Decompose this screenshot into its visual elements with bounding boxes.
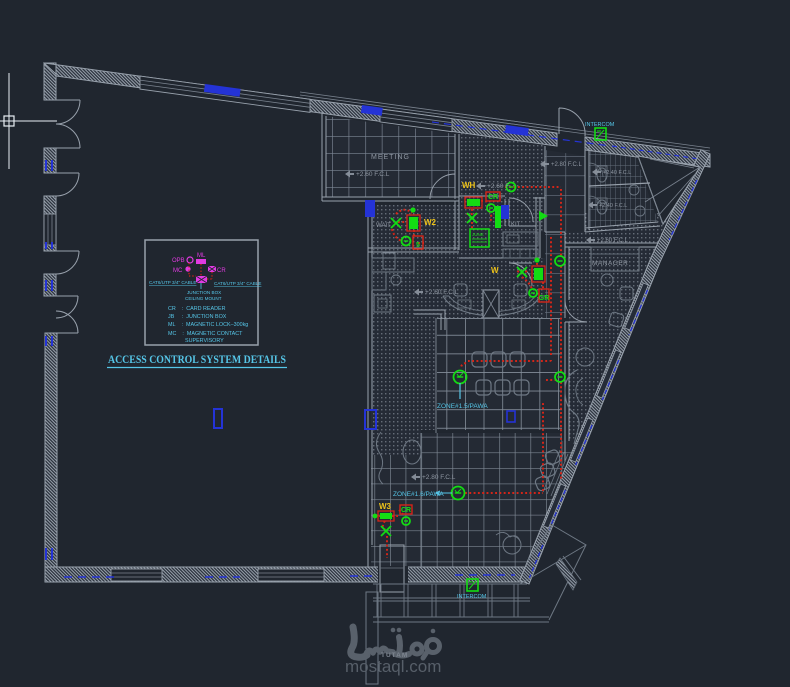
svg-text:CR: CR bbox=[488, 194, 498, 201]
svg-text:JUNCTION BOX: JUNCTION BOX bbox=[187, 290, 221, 295]
svg-text:OPB: OPB bbox=[172, 258, 185, 264]
svg-text:W3: W3 bbox=[379, 502, 392, 511]
svg-text:5: 5 bbox=[416, 242, 420, 249]
svg-text:INTERCOM: INTERCOM bbox=[585, 122, 615, 128]
svg-text:+2.60 F: +2.60 F bbox=[487, 183, 509, 190]
svg-text:+2.60 F.C.L: +2.60 F.C.L bbox=[356, 171, 390, 178]
svg-text:ACCESS CONTROL SYSTEM DETAI: ACCESS CONTROL SYSTEM DETAILS bbox=[108, 352, 286, 366]
svg-text:CR: CR bbox=[217, 268, 226, 274]
svg-text:ML : MAGNETIC LOCK–300kg: ML : MAGNETIC LOCK–300kg bbox=[168, 322, 248, 328]
svg-text:KIT: KIT bbox=[511, 222, 521, 228]
svg-text:+2.60 F.C.L: +2.60 F.C.L bbox=[597, 238, 629, 244]
svg-text:+2.40 F.C.L: +2.40 F.C.L bbox=[599, 203, 627, 209]
svg-text:MC: MC bbox=[173, 268, 183, 274]
svg-text:CAT6/UTP 3/4" CABLE: CAT6/UTP 3/4" CABLE bbox=[214, 281, 261, 286]
svg-text:MANAGER: MANAGER bbox=[592, 260, 628, 267]
svg-text:+2.80 F.C.L: +2.80 F.C.L bbox=[422, 474, 456, 481]
svg-text:WH: WH bbox=[462, 181, 476, 190]
svg-text:CR : CARD READER: CR : CARD READER bbox=[168, 306, 226, 312]
svg-text:+2.80 F.C.L: +2.80 F.C.L bbox=[551, 162, 583, 168]
svg-text:MEETING: MEETING bbox=[371, 154, 410, 161]
svg-text:CR: CR bbox=[401, 507, 411, 514]
svg-text:INTERCOM: INTERCOM bbox=[457, 594, 487, 600]
svg-text:W: W bbox=[491, 266, 499, 275]
svg-text:MC : MAGNETIC CONTACT: MC : MAGNETIC CONTACT bbox=[168, 331, 243, 337]
svg-text:ZONE#1.5/PAWA: ZONE#1.5/PAWA bbox=[437, 403, 488, 410]
svg-text:SUPERVISORY: SUPERVISORY bbox=[185, 338, 224, 344]
svg-text:+2.60 F.C.L: +2.60 F.C.L bbox=[425, 289, 459, 296]
svg-text:WAIT: WAIT bbox=[376, 223, 391, 229]
svg-text:W2: W2 bbox=[424, 218, 437, 227]
svg-text:+2.40 F.C.L: +2.40 F.C.L bbox=[603, 170, 631, 176]
svg-text:JUNK: JUNK bbox=[472, 232, 484, 237]
svg-text:JB : JUNCTION BOX: JB : JUNCTION BOX bbox=[168, 314, 227, 320]
svg-text:CEILING MOUNT: CEILING MOUNT bbox=[185, 296, 222, 301]
svg-text:ML: ML bbox=[197, 253, 206, 259]
svg-text:GR: GR bbox=[539, 295, 550, 302]
svg-text:mostaql.com: mostaql.com bbox=[345, 657, 441, 676]
svg-text:ZONE#1.6/PAWA: ZONE#1.6/PAWA bbox=[393, 491, 444, 498]
svg-text:CAT6/UTP 3/4" CABLE: CAT6/UTP 3/4" CABLE bbox=[149, 280, 196, 285]
